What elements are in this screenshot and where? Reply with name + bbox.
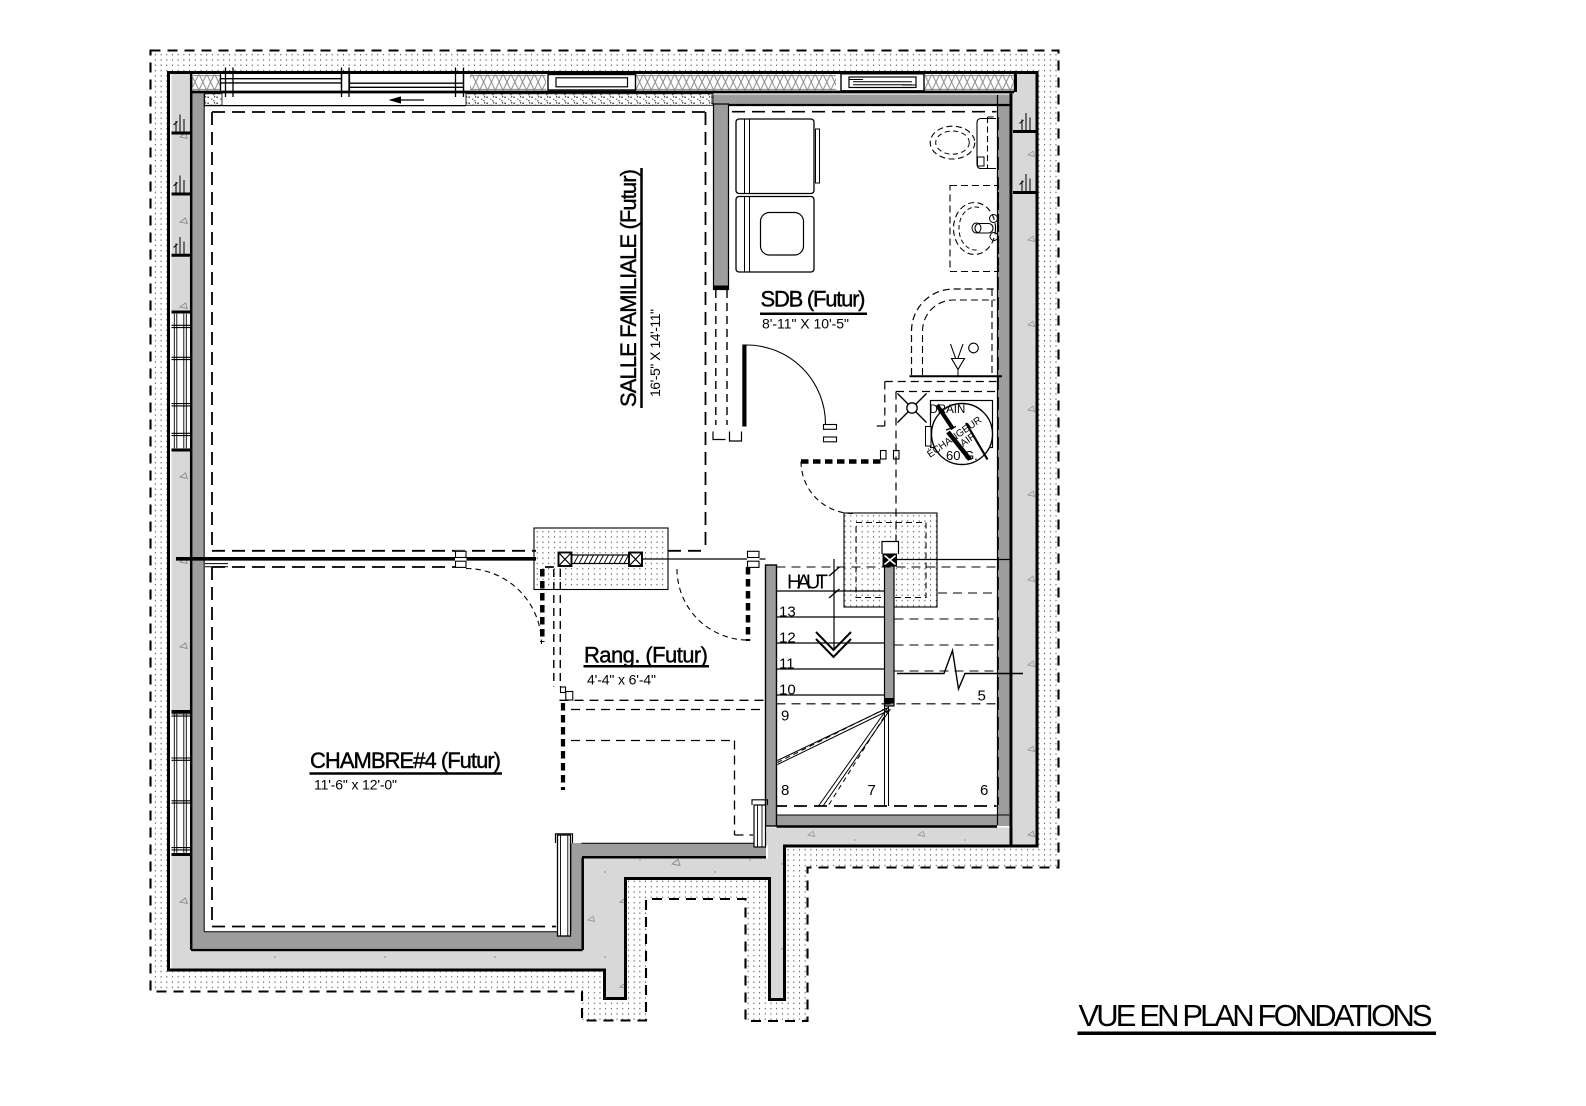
svg-text:9: 9 xyxy=(781,708,789,725)
svg-text:VUE EN PLAN FONDATIONS: VUE EN PLAN FONDATIONS xyxy=(1079,998,1433,1033)
svg-text:DRAIN: DRAIN xyxy=(930,404,966,416)
svg-text:11: 11 xyxy=(779,655,795,672)
svg-text:7: 7 xyxy=(868,782,876,799)
svg-text:5: 5 xyxy=(978,687,986,704)
svg-text:4'-4" x 6'-4": 4'-4" x 6'-4" xyxy=(587,672,656,688)
svg-text:HAUT: HAUT xyxy=(787,572,828,594)
svg-text:11'-6" x 12'-0": 11'-6" x 12'-0" xyxy=(314,777,397,793)
svg-text:8'-11" X 10'-5": 8'-11" X 10'-5" xyxy=(762,316,849,332)
svg-text:10: 10 xyxy=(779,681,796,698)
svg-text:13: 13 xyxy=(779,604,796,621)
svg-text:16'-5" X 14'-11": 16'-5" X 14'-11" xyxy=(647,309,663,397)
svg-text:Rang. (Futur): Rang. (Futur) xyxy=(584,643,708,668)
svg-text:CHAMBRE#4 (Futur): CHAMBRE#4 (Futur) xyxy=(310,748,501,773)
svg-text:SALLE FAMILIALE (Futur): SALLE FAMILIALE (Futur) xyxy=(616,169,641,407)
svg-text:60 G.: 60 G. xyxy=(946,448,978,463)
svg-text:8: 8 xyxy=(781,782,789,799)
svg-text:12: 12 xyxy=(779,630,796,647)
svg-text:SDB (Futur): SDB (Futur) xyxy=(761,287,866,312)
svg-text:6: 6 xyxy=(980,782,988,799)
